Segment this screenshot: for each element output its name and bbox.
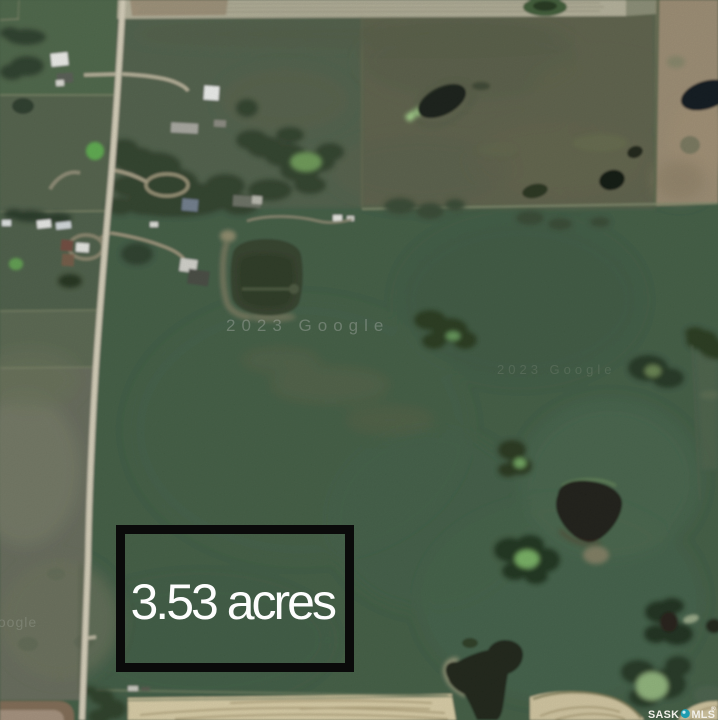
svg-text:Google: Google bbox=[0, 614, 37, 630]
svg-text:SASK: SASK bbox=[648, 709, 679, 720]
svg-text:2023 Google: 2023 Google bbox=[226, 316, 389, 335]
svg-text:3.53 acres: 3.53 acres bbox=[131, 574, 336, 630]
svg-text:®: ® bbox=[711, 705, 716, 713]
svg-text:2023 Google: 2023 Google bbox=[497, 362, 615, 377]
